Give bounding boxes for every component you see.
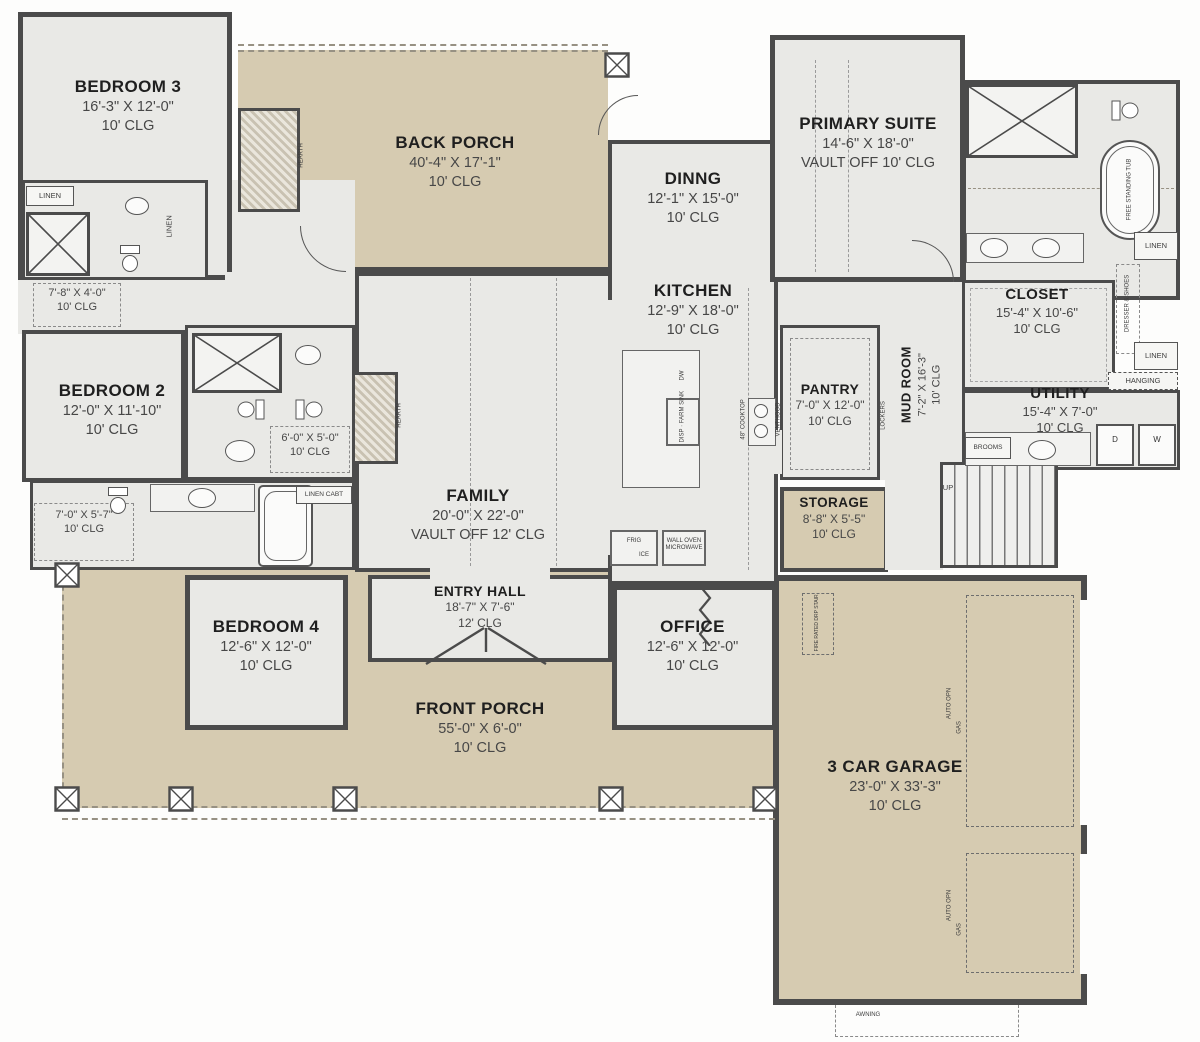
- gas-label: GAS: [957, 917, 964, 941]
- room-label-bedroom3: BEDROOM 3 16'-3" X 12'-0" 10' CLG: [48, 76, 208, 136]
- sink-icon: [125, 197, 149, 215]
- farm-sink-label: DISP · FARM SINK: [680, 396, 687, 442]
- brooms-label: BROOMS: [965, 437, 1011, 459]
- front-porch-roof-line: [62, 818, 775, 820]
- room-label-garage: 3 CAR GARAGE 23'-0" X 33'-3" 10' CLG: [805, 756, 985, 816]
- sink-icon: [980, 238, 1008, 258]
- room-label-kitchen: KITCHEN 12'-9" X 18'-0" 10' CLG: [618, 280, 768, 340]
- refrigerator: [610, 530, 658, 566]
- wall-oven-label: WALL OVENMICROWAVE: [664, 538, 704, 552]
- room-label-dining: DINNG 12'-1" X 15'-0" 10' CLG: [618, 168, 768, 228]
- hearth-label: HEARTH: [397, 397, 404, 433]
- sink-icon: [225, 440, 255, 462]
- shower-icon: [966, 84, 1078, 158]
- room-label-back-porch: BACK PORCH 40'-4" X 17'-1" 10' CLG: [375, 132, 535, 192]
- porch-post-icon: [54, 562, 80, 588]
- closet-label-jj: 6'-0" X 5'-0" 10' CLG: [272, 431, 348, 460]
- cooktop-burner: [754, 424, 768, 438]
- floor-plan: UP BEDROOM 3 16'-3" X 12'-0" 10' CLG BAC…: [0, 0, 1200, 1042]
- sink-icon: [1032, 238, 1060, 258]
- family-kitchen-opening: [600, 300, 616, 555]
- room-label-entry-hall: ENTRY HALL 18'-7" X 7'-6" 12' CLG: [410, 582, 550, 631]
- fireplace-hearth: [238, 108, 300, 212]
- porch-post-icon: [604, 52, 630, 78]
- dresser-shoes-label: DRESSER & SHOES: [1125, 265, 1132, 341]
- cooktop-label: 48" COOKTOP: [741, 391, 748, 447]
- room-label-mud-room: MUD ROOM 7'-2" X 16'-3" 10' CLG: [898, 320, 943, 450]
- linen-cabinet-label: LINEN CABT: [296, 486, 352, 504]
- toilet-icon: [296, 400, 325, 420]
- dishwasher-label: DW: [680, 360, 687, 390]
- ice-label: ICE: [634, 552, 654, 559]
- room-label-front-porch: FRONT PORCH 55'-0" X 6'-0" 10' CLG: [395, 698, 565, 758]
- venthood-label: VENTHOOD: [776, 396, 783, 442]
- room-label-family: FAMILY 20'-0" X 22'-0" VAULT OFF 12' CLG: [388, 485, 568, 545]
- gas-label: GAS: [957, 715, 964, 739]
- garage-door-opening: [1080, 600, 1090, 825]
- room-label-bedroom2: BEDROOM 2 12'-0" X 11'-10" 10' CLG: [32, 380, 192, 440]
- auto-opener-label: AUTO OPN: [947, 683, 954, 723]
- room-label-pantry: PANTRY 7'-0" X 12'-0" 10' CLG: [782, 380, 878, 429]
- room-label-storage: STORAGE 8'-8" X 5'-5" 10' CLG: [788, 494, 880, 543]
- hearth-label: HEARTH: [299, 137, 306, 173]
- room-label-bedroom4: BEDROOM 4 12'-6" X 12'-0" 10' CLG: [186, 616, 346, 676]
- stairs: [940, 462, 1058, 568]
- frig-label: FRIG: [616, 538, 652, 545]
- toilet-icon: [120, 245, 140, 274]
- garage-bay: [966, 853, 1074, 973]
- linen-label: LINEN: [166, 204, 175, 248]
- closet-label-bed3: 7'-8" X 4'-0" 10' CLG: [35, 286, 119, 315]
- shower-icon: [26, 212, 90, 276]
- porch-post-icon: [54, 786, 80, 812]
- free-standing-tub-label: FREE STANDING TUB: [1127, 155, 1134, 223]
- linen-label: LINEN: [1134, 232, 1178, 260]
- awning-label: AWNING: [846, 1012, 890, 1019]
- garage-door-opening: [1080, 854, 1090, 974]
- porch-post-icon: [332, 786, 358, 812]
- sink-icon: [188, 488, 216, 508]
- family-entry-opening: [430, 562, 550, 580]
- room-label-primary-closet: CLOSET 15'-4" X 10'-6" 10' CLG: [972, 285, 1102, 338]
- stairs-up-label: UP: [938, 484, 958, 493]
- fireplace-hearth: [352, 372, 398, 464]
- linen-label: LINEN: [1134, 342, 1178, 370]
- awning-outline: [835, 1005, 1019, 1037]
- sink-icon: [1028, 440, 1056, 460]
- toilet-icon: [236, 400, 265, 420]
- room-label-primary-suite: PRIMARY SUITE 14'-6" X 18'-0" VAULT OFF …: [778, 113, 958, 173]
- hanging-label: HANGING: [1108, 372, 1178, 390]
- toilet-icon: [1112, 101, 1141, 121]
- linen-label: LINEN: [26, 186, 74, 206]
- room-label-office: OFFICE 12'-6" X 12'-0" 10' CLG: [615, 616, 770, 676]
- hall-area: [885, 478, 943, 570]
- porch-post-icon: [168, 786, 194, 812]
- closet-label-bed4: 7'-0" X 5'-7" 10' CLG: [40, 508, 128, 537]
- lockers-label: LOCKERS: [881, 393, 888, 437]
- porch-post-icon: [598, 786, 624, 812]
- room-label-utility: UTILITY 15'-4" X 7'-0" 10' CLG: [985, 384, 1135, 437]
- cooktop-burner: [754, 404, 768, 418]
- washer-icon: W: [1138, 424, 1176, 466]
- auto-opener-label: AUTO OPN: [947, 885, 954, 925]
- hall-opening: [225, 272, 345, 280]
- sink-icon: [295, 345, 321, 365]
- back-porch-roof-line: [238, 44, 608, 46]
- fire-rated-stair-label: FIRE RATED DRP STAIR: [815, 583, 821, 663]
- shower-icon: [192, 333, 282, 393]
- porch-post-icon: [752, 786, 778, 812]
